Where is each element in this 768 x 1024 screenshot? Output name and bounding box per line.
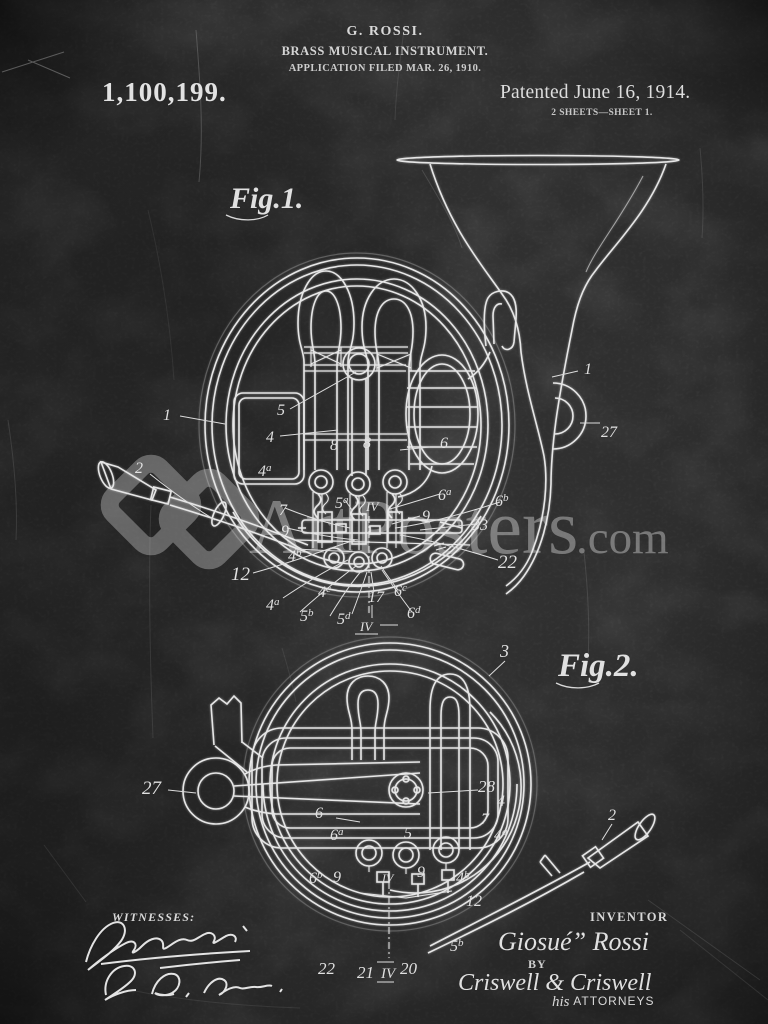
svg-text:17: 17 bbox=[368, 589, 385, 606]
svg-text:IV: IV bbox=[381, 871, 395, 885]
svg-text:20: 20 bbox=[400, 959, 418, 978]
svg-text:12: 12 bbox=[231, 564, 251, 585]
svg-text:1,100,199.: 1,100,199. bbox=[102, 77, 227, 107]
svg-text:7: 7 bbox=[481, 811, 490, 828]
svg-text:4: 4 bbox=[497, 793, 505, 810]
svg-text:INVENTOR: INVENTOR bbox=[590, 910, 668, 924]
svg-text:APPLICATION FILED MAR. 26, 191: APPLICATION FILED MAR. 26, 1910. bbox=[289, 63, 482, 74]
svg-text:2 SHEETS—SHEET 1.: 2 SHEETS—SHEET 1. bbox=[551, 108, 652, 118]
svg-text:6: 6 bbox=[440, 435, 448, 452]
svg-text:8: 8 bbox=[363, 435, 371, 452]
svg-text:ArtPosters: ArtPosters bbox=[249, 483, 578, 570]
svg-text:BY: BY bbox=[528, 957, 547, 971]
svg-text:6: 6 bbox=[315, 805, 323, 822]
svg-text:1: 1 bbox=[584, 361, 592, 378]
svg-text:.com: .com bbox=[576, 512, 669, 564]
svg-text:G. ROSSI.: G. ROSSI. bbox=[347, 24, 424, 39]
svg-text:Fig.1.: Fig.1. bbox=[229, 182, 303, 215]
svg-text:8: 8 bbox=[330, 437, 338, 454]
svg-text:Fig.2.: Fig.2. bbox=[557, 648, 639, 684]
svg-text:2: 2 bbox=[608, 807, 616, 824]
svg-text:IV: IV bbox=[380, 966, 397, 982]
svg-text:IV: IV bbox=[359, 619, 374, 634]
svg-text:3: 3 bbox=[499, 641, 509, 661]
svg-text:1: 1 bbox=[163, 407, 171, 424]
svg-text:12: 12 bbox=[466, 893, 482, 910]
svg-text:Patented June 16, 1914.: Patented June 16, 1914. bbox=[500, 82, 690, 103]
svg-text:5: 5 bbox=[404, 825, 412, 842]
svg-text:BRASS MUSICAL INSTRUMENT.: BRASS MUSICAL INSTRUMENT. bbox=[282, 44, 489, 58]
svg-text:27: 27 bbox=[601, 424, 618, 441]
svg-text:9: 9 bbox=[417, 864, 425, 881]
svg-text:28: 28 bbox=[478, 777, 496, 796]
svg-text:Giosué” Rossi: Giosué” Rossi bbox=[498, 927, 649, 956]
svg-text:4: 4 bbox=[266, 429, 274, 446]
svg-text:22: 22 bbox=[318, 959, 336, 978]
svg-text:WITNESSES:: WITNESSES: bbox=[112, 910, 195, 924]
svg-text:27: 27 bbox=[142, 778, 163, 799]
svg-text:Criswell & Criswell: Criswell & Criswell bbox=[458, 970, 652, 996]
svg-text:his ATTORNEYS: his ATTORNEYS bbox=[552, 994, 655, 1010]
svg-text:21: 21 bbox=[357, 963, 374, 982]
svg-text:5: 5 bbox=[277, 402, 285, 419]
svg-text:9: 9 bbox=[333, 869, 341, 886]
